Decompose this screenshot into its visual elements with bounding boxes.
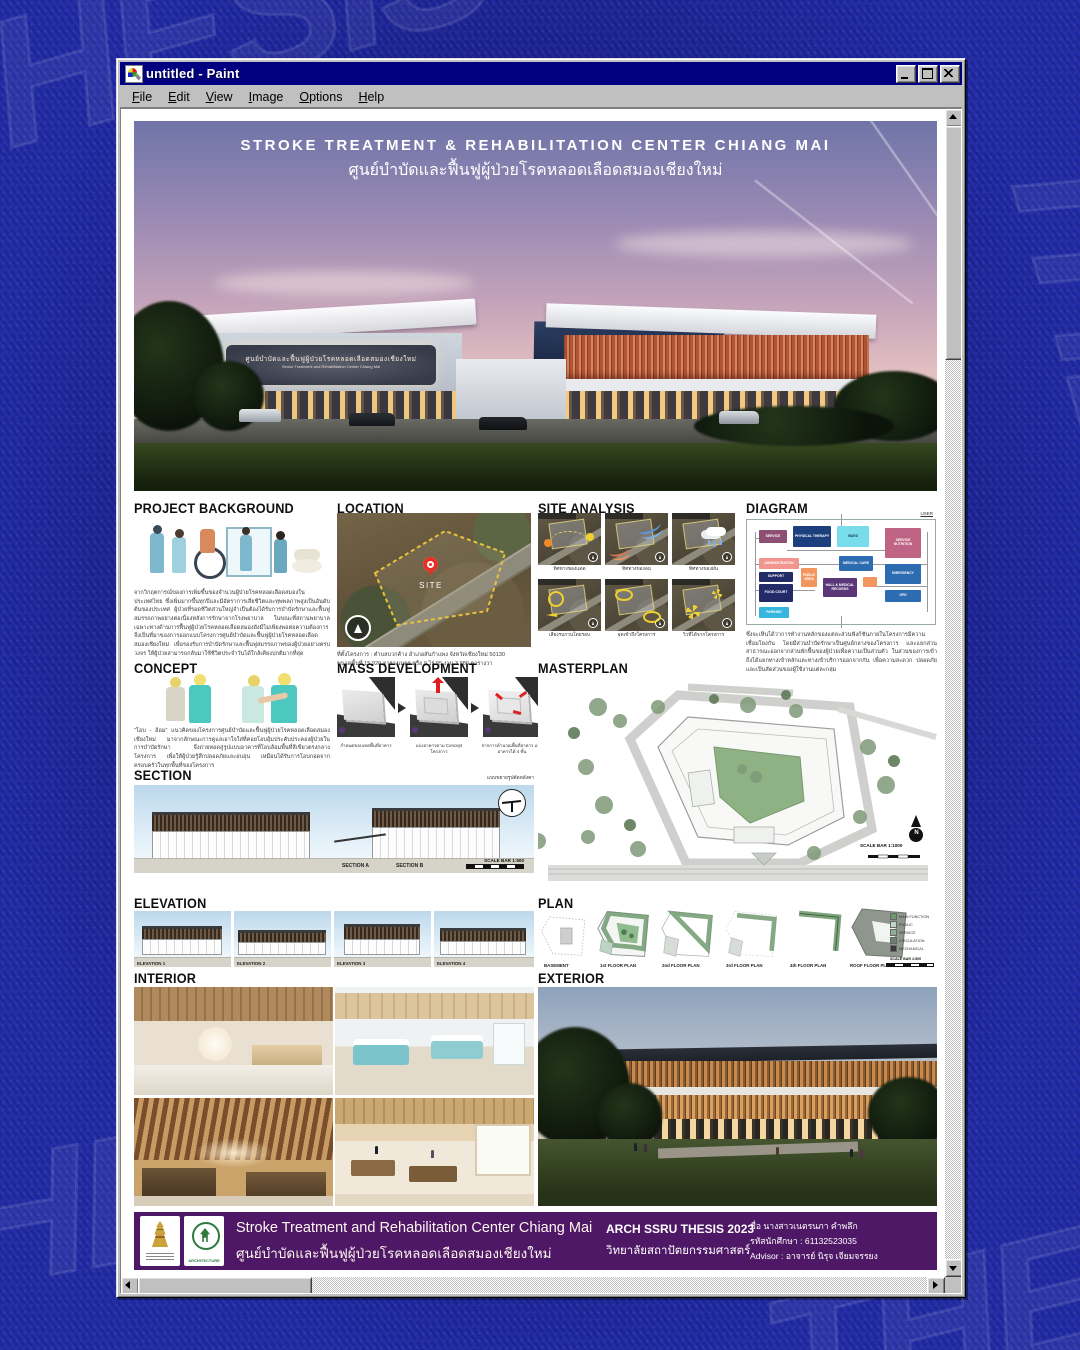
poster-title-th: ศูนย์บำบัดและฟื้นฟูผู้ป่วยโรคหลอดเลือดสม… — [134, 158, 937, 183]
diagram-box: SUPPORT — [759, 572, 793, 582]
step-badge — [412, 727, 418, 733]
site-pin-icon — [423, 557, 438, 572]
elevation-building — [142, 929, 222, 955]
diagram-heading: DIAGRAM — [746, 501, 808, 516]
concept-illustration — [162, 677, 312, 723]
legend-label: SERVICE — [899, 931, 916, 935]
masterplan-drawing: N SCALE BAR 1:1000 — [538, 677, 937, 882]
scroll-down-button[interactable] — [945, 1259, 962, 1277]
plan-basement — [540, 911, 588, 966]
hero-render: STROKE TREATMENT & REHABILITATION CENTER… — [134, 121, 937, 491]
therapy-ball — [292, 559, 322, 573]
interior-activity-render — [335, 1098, 534, 1206]
project-background-heading: PROJECT BACKGROUND — [134, 501, 294, 516]
scrollbar-corner — [945, 1277, 961, 1293]
concept-body: “โอบ - อ้อม” แนวคิดของโครงการศูนย์บำบัดแ… — [134, 727, 330, 770]
figure — [240, 535, 252, 571]
diagram-box: PARKING — [759, 607, 789, 618]
legend-item: PUBLIC — [890, 921, 913, 928]
masterplan-scale-label: SCALE BAR 1:1000 — [860, 843, 902, 848]
site-label: SITE — [401, 581, 461, 590]
site-analysis-item: ทิศทางของฝน — [672, 513, 735, 573]
building-louver-band — [564, 335, 869, 379]
table — [409, 1166, 457, 1182]
building-base — [142, 939, 222, 955]
sun-path-icon — [550, 531, 588, 552]
figure — [172, 537, 186, 573]
vertical-scroll-thumb[interactable] — [945, 126, 962, 360]
concept-heading: CONCEPT — [134, 661, 197, 676]
figure — [274, 539, 287, 573]
site-analysis-thumbnail — [605, 513, 668, 565]
architecture-logo: ARCHITECTURE — [184, 1216, 224, 1266]
diagram-connector — [755, 532, 756, 616]
legend-label: MECHANICAL — [899, 947, 924, 951]
section-building-b — [372, 811, 500, 859]
legend-item: MECHANICAL — [890, 945, 924, 952]
table — [351, 1160, 395, 1176]
diagram-box: PHYSICAL THERAPY — [793, 526, 831, 547]
legend-item: CIRCULATION — [890, 937, 924, 944]
paint-app-icon — [125, 65, 143, 83]
mass-block — [415, 689, 457, 722]
legend-label: CIRCULATION — [899, 939, 924, 943]
site-analysis-caption: จุดเข้าถึงโครงการ — [605, 633, 668, 639]
site-analysis-caption: ทิศทางของลม — [605, 567, 668, 573]
floor — [134, 1196, 333, 1206]
person — [850, 1149, 853, 1157]
figure — [242, 686, 264, 723]
view-rays-icon — [686, 605, 700, 619]
person — [634, 1143, 637, 1151]
plan-1st-floor — [596, 907, 652, 966]
plan-label: 1st FLOOR PLAN — [600, 963, 636, 968]
scale-bar — [886, 963, 934, 967]
step-badge — [485, 727, 491, 733]
round-lamp — [198, 1027, 232, 1061]
legend-swatch — [890, 913, 897, 920]
figure-head — [153, 525, 162, 534]
mass-caption: กำหนดขอบเขตพื้นที่อาคาร — [335, 743, 397, 749]
university-logo — [140, 1216, 180, 1266]
masterplan-heading: MASTERPLAN — [538, 661, 628, 676]
mass-caption: แบ่งอาคารตาม Concept โครงการ — [408, 743, 470, 754]
poster-title-en: STROKE TREATMENT & REHABILITATION CENTER… — [134, 137, 937, 154]
interior-heading: INTERIOR — [134, 971, 196, 986]
section-building-a — [152, 815, 310, 859]
scroll-right-button[interactable] — [927, 1277, 945, 1294]
step-badge — [339, 727, 345, 733]
maximize-button[interactable] — [918, 65, 938, 83]
paint-canvas[interactable]: STROKE TREATMENT & REHABILITATION CENTER… — [120, 108, 962, 1294]
building-base — [238, 942, 326, 955]
section-heading: SECTION — [134, 768, 192, 783]
thesis-poster: STROKE TREATMENT & REHABILITATION CENTER… — [134, 121, 937, 1273]
section-drawing: SECTION A SECTION B SCALE BAR 1:500 — [134, 785, 534, 873]
diagram-user-label: USER — [920, 511, 933, 516]
site-analysis-item: ทิศทางของลม — [605, 513, 668, 573]
elevation-3: ELEVATION 3 — [334, 911, 431, 967]
louver-band — [152, 815, 310, 831]
wallpaper-watermark: THESIS — [963, 110, 1080, 757]
site-analysis-caption: ทิศทางของแดด — [538, 567, 601, 573]
title-bar[interactable]: untitled - Paint — [120, 62, 962, 85]
reception-desk — [252, 1045, 322, 1067]
mass-development-heading: MASS DEVELOPMENT — [337, 661, 477, 676]
diagram-box: FOOD COURT — [759, 584, 793, 602]
counter — [142, 1168, 216, 1196]
window — [475, 1124, 531, 1176]
site-analysis-caption: ทิศทางของฝน — [672, 567, 735, 573]
person — [644, 1144, 647, 1152]
elevation-2: ELEVATION 2 — [234, 911, 331, 967]
car — [719, 411, 759, 424]
elevation-building — [344, 927, 420, 955]
diagram-box: ADMINISTRATION — [759, 558, 799, 569]
counter — [246, 1172, 326, 1198]
elevation-label: ELEVATION 2 — [237, 961, 265, 966]
diagram-body: ซึ่งจะเห็นได้ว่าการทำงานหลักของแต่ละส่วน… — [746, 631, 937, 674]
site-analysis-thumbnail — [672, 513, 735, 565]
logo-text-lines — [146, 1253, 174, 1262]
diagram-box: EMERGENCY — [885, 564, 921, 584]
legend-swatch — [890, 937, 897, 944]
plan-label: BASEMENT — [544, 963, 569, 968]
footer-advisor: Advisor : อาจารย์ นิรุจ เจียมจรรยง — [750, 1249, 878, 1263]
elevation-label: ELEVATION 4 — [437, 961, 465, 966]
interior-lobby-render — [134, 987, 333, 1095]
site-analysis-thumbnail — [605, 579, 668, 631]
site-analysis-caption: วิวที่ได้จากโครงการ — [672, 633, 735, 639]
legend-item: SERVICE — [890, 929, 916, 936]
project-background-body: จากวิกฤตการณ์ของการเพิ่มขึ้นของจำนวนผู้ป… — [134, 589, 330, 658]
mass-block — [342, 689, 384, 722]
minimize-button[interactable] — [896, 65, 916, 83]
legend-swatch — [890, 921, 897, 928]
diagram-box: MEDICAL CARE — [839, 556, 873, 571]
architecture-logo-caption: ARCHITECTURE — [184, 1258, 224, 1263]
elevation-building — [440, 931, 526, 955]
footer-bar: ARCHITECTURE Stroke Treatment and Rehabi… — [134, 1212, 937, 1270]
figure — [189, 685, 211, 723]
menu-bar: File Edit View Image Options Help — [120, 86, 962, 108]
mass-court — [423, 697, 448, 715]
cloud-decor — [214, 271, 474, 295]
noise-icon — [548, 591, 564, 607]
building-base — [372, 827, 500, 859]
footer-title-en: Stroke Treatment and Rehabilitation Cent… — [236, 1220, 592, 1236]
menu-image[interactable]: Image — [241, 88, 292, 106]
cloud-decor — [614, 231, 914, 257]
diagram-box: SERVICE NUTRITION — [885, 528, 921, 558]
site-analysis-thumbnail — [538, 579, 601, 631]
plan-label: 2nd FLOOR PLAN — [662, 963, 700, 968]
person — [375, 1146, 378, 1154]
figure — [166, 687, 185, 721]
elevation-heading: ELEVATION — [134, 896, 206, 911]
site-analysis-item: ทิศทางของแดด — [538, 513, 601, 573]
scale-bar — [466, 864, 524, 869]
mass-caption: จากการคำนวณพื้นที่อาคาร แบ่งอาคารได้ 4 ช… — [481, 743, 543, 754]
building-band — [564, 379, 869, 391]
rain-cloud-icon — [706, 527, 726, 536]
location-map: SITE — [337, 513, 531, 647]
legend-label: MAIN FUNCTION — [899, 915, 929, 919]
university-emblem-icon — [151, 1221, 169, 1247]
site-analysis-item: เสียงรบกวนโดยรอบ — [538, 579, 601, 639]
tree-icon — [192, 1222, 220, 1250]
figure — [200, 529, 215, 553]
function-diagram: USER SERVICE PHYSICAL THERAPY WARD SERVI… — [746, 519, 936, 625]
section-detail-label: แบบขยายรูปตัดหลังคา — [464, 776, 534, 782]
interior-ward-render — [335, 987, 534, 1095]
view-rays-icon — [712, 589, 722, 599]
car — [349, 413, 395, 426]
footer-student-id: รหัสนักศึกษา : 61132523035 — [750, 1234, 857, 1248]
building-base — [152, 831, 310, 859]
paint-window: untitled - Paint File Edit View Image Op… — [116, 58, 966, 1298]
noise-arrow-icon — [546, 613, 562, 617]
lawn — [134, 443, 937, 491]
plan-2nd-floor — [660, 907, 716, 966]
floor — [335, 1194, 534, 1206]
building-base — [344, 939, 420, 955]
patient-bed — [431, 1035, 483, 1059]
diagram-box — [863, 577, 877, 587]
roof-detail-circle — [498, 789, 526, 817]
horizontal-scrollbar[interactable] — [121, 1277, 945, 1293]
footer-title-th: ศูนย์บำบัดและฟื้นฟูผู้ป่วยโรคหลอดเลือดสม… — [236, 1242, 552, 1264]
building-mid-wing — [456, 359, 566, 421]
elevation-4: ELEVATION 4 — [434, 911, 534, 967]
floor — [134, 1065, 333, 1095]
location-address: ที่ตั้งโครงการ : ตำบลบวกค้าง อำเภอสันกำแ… — [337, 651, 533, 660]
figure — [150, 533, 164, 573]
mass-step-2 — [410, 677, 468, 737]
louver-band — [238, 933, 326, 942]
close-button[interactable] — [940, 65, 960, 83]
access-point-icon — [615, 589, 633, 601]
mass-step-1 — [337, 677, 395, 737]
legend-item: MAIN FUNCTION — [890, 913, 929, 920]
louver-band — [372, 811, 500, 827]
plan-scale-label: SCALE BAR 1:500 — [890, 957, 921, 961]
wood-wall — [335, 993, 534, 1019]
desktop-background: THESIS THESIS THESIS THESIS untitled - P… — [0, 0, 1080, 1350]
louver-band — [440, 931, 526, 941]
scroll-left-button[interactable] — [121, 1277, 139, 1294]
diagram-box: SERVICE — [759, 530, 787, 543]
horizontal-scroll-thumb[interactable] — [138, 1277, 312, 1294]
site-analysis-item: วิวที่ได้จากโครงการ — [672, 579, 735, 639]
louver-band — [142, 929, 222, 939]
plan-label: 4th FLOOR PLAN — [790, 963, 826, 968]
scroll-up-button[interactable] — [945, 109, 962, 127]
person — [860, 1150, 863, 1158]
menu-help[interactable]: Help — [350, 88, 392, 106]
diagram-box: PUBLIC AREA — [801, 568, 817, 587]
footer-student-name: ชื่อ นางสาวเนตรนภา คำพลึก — [750, 1219, 858, 1233]
legend-swatch — [890, 945, 897, 952]
window — [493, 1023, 525, 1065]
access-point-icon — [643, 611, 661, 623]
figure — [271, 685, 297, 723]
elevation-1: ELEVATION 1 — [134, 911, 231, 967]
section-a-label: SECTION A — [342, 863, 369, 869]
diagram-box: WARD — [837, 526, 869, 547]
plan-4th-floor — [788, 907, 844, 966]
diagram-connector — [927, 532, 928, 612]
sign-text-th: ศูนย์บำบัดและฟื้นฟูผู้ป่วยโรคหลอดเลือดสม… — [226, 354, 436, 364]
menu-edit[interactable]: Edit — [160, 88, 198, 106]
legend-label: PUBLIC — [899, 923, 913, 927]
rain-drops-icon — [708, 540, 710, 545]
menu-options[interactable]: Options — [291, 88, 350, 106]
menu-file[interactable]: File — [124, 88, 160, 106]
vertical-scrollbar[interactable] — [945, 109, 961, 1277]
building-base — [440, 941, 526, 955]
site-analysis-caption: เสียงรบกวนโดยรอบ — [538, 633, 601, 639]
section-scale-label: SCALE BAR 1:500 — [484, 858, 524, 863]
diagram-box: OPD — [885, 590, 921, 602]
figure-head — [242, 527, 250, 535]
legend-swatch — [890, 929, 897, 936]
section-b-label: SECTION B — [396, 863, 423, 869]
patient-bed — [353, 1039, 409, 1065]
glow — [194, 1138, 274, 1168]
plan-label: 3rd FLOOR PLAN — [726, 963, 763, 968]
footer-program: ARCH SSRU THESIS 2023 — [606, 1222, 754, 1236]
wood-ceiling — [134, 987, 333, 1021]
diagram-connector — [841, 616, 842, 628]
car — [239, 409, 281, 422]
site-analysis-thumbnail — [538, 513, 601, 565]
plan-heading: PLAN — [538, 896, 573, 911]
window-title: untitled - Paint — [146, 66, 896, 81]
sign-text-en: Stroke Treatment and Rehabilitation Cent… — [226, 364, 436, 369]
compass-icon — [345, 615, 371, 641]
car — [479, 417, 527, 430]
diagram-connector — [873, 586, 927, 587]
exterior-heading: EXTERIOR — [538, 971, 604, 986]
figure-head — [276, 531, 285, 540]
red-arrow-head — [432, 677, 444, 683]
project-background-illustration — [142, 519, 324, 583]
elevation-label: ELEVATION 3 — [337, 961, 365, 966]
person — [431, 1150, 434, 1158]
elevation-building — [238, 933, 326, 955]
wood-ceiling — [335, 1098, 534, 1124]
person — [776, 1147, 779, 1155]
plan-3rd-floor — [724, 907, 780, 966]
site-analysis-item: จุดเข้าถึงโครงการ — [605, 579, 668, 639]
mass-step-3 — [483, 677, 541, 737]
figure-head — [175, 529, 184, 538]
interior-corridor-render — [134, 1098, 333, 1206]
louver-band — [344, 927, 420, 939]
north-label: N — [912, 830, 921, 836]
diagram-box: HALL & MEDICAL RECORDS — [823, 578, 857, 597]
elevation-label: ELEVATION 1 — [137, 961, 165, 966]
footer-faculty: วิทยาลัยสถาปัตยกรรมศาสตร์ — [606, 1242, 750, 1260]
masterplan-svg — [538, 677, 937, 882]
menu-view[interactable]: View — [198, 88, 241, 106]
site-analysis-thumbnail — [672, 579, 735, 631]
exterior-render — [538, 987, 937, 1206]
